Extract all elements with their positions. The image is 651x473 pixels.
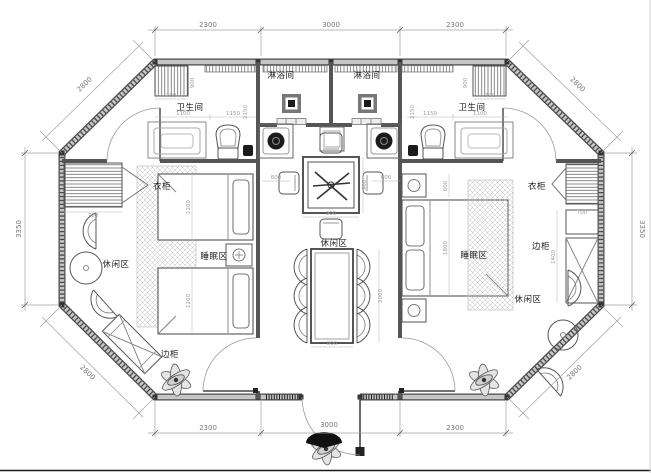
single-bed	[158, 174, 253, 240]
single-bed	[158, 268, 253, 334]
room-label-wardrobe-right: 衣柜	[528, 181, 546, 192]
dim-diag-tr: 2800	[568, 75, 586, 93]
dim-minor: 600	[381, 175, 392, 181]
room-label-lounge-right: 休闲区	[514, 294, 541, 305]
rug	[468, 180, 513, 310]
nightstand	[226, 244, 252, 266]
floor-drain-icon	[243, 145, 253, 156]
pillow	[233, 274, 249, 328]
room-label-cabinet-left: 边柜	[161, 349, 179, 360]
room-label-wardrobe-left: 衣柜	[153, 181, 171, 192]
dim-minor: 1150	[423, 111, 437, 117]
shower-drain-icon	[282, 94, 301, 113]
dim-minor: 1200	[186, 294, 192, 308]
room-label-lounge-center: 休闲区	[320, 238, 347, 249]
dim-minor: 700	[485, 93, 496, 99]
dim-minor: 800	[327, 341, 338, 347]
dim-minor: 2000	[378, 289, 384, 303]
dim-minor: 900	[326, 211, 337, 217]
room-label-cabinet-right: 边柜	[532, 241, 550, 252]
dim-top-right: 2300	[446, 21, 464, 29]
dim-minor: 700	[577, 210, 588, 216]
dim-minor: 1200	[186, 200, 192, 214]
dim-minor: 600	[443, 180, 449, 191]
radiator-icon	[155, 66, 188, 96]
nightstand	[402, 299, 426, 322]
dim-diag-br: 2800	[565, 363, 583, 381]
floor-plan-drawing: 淋浴间 淋浴间 卫生间 卫生间 衣柜 衣柜 休闲区 休闲区 休闲区 睡眠区 睡眠…	[0, 0, 651, 473]
room-label-lounge-left: 休闲区	[102, 259, 129, 270]
floor-drain-icon	[408, 145, 418, 156]
dim-bottom-center: 3000	[320, 421, 338, 429]
pillow	[233, 180, 249, 234]
pillow	[406, 250, 424, 290]
dim-left: 3350	[15, 220, 23, 238]
dim-minor: 2150	[410, 105, 416, 119]
dim-minor: 1150	[226, 111, 240, 117]
dim-minor: 2150	[243, 105, 249, 119]
nightstand	[402, 174, 426, 197]
radiator-icon	[473, 66, 506, 96]
shower-drain-icon	[358, 94, 377, 113]
dim-minor: 900	[463, 77, 469, 88]
pillow	[406, 206, 424, 246]
dim-bottom-right: 2300	[446, 424, 464, 432]
dim-minor: 1400	[551, 250, 557, 264]
dim-minor: 1100	[473, 111, 487, 117]
dim-minor: 900	[190, 77, 196, 88]
floor-plan-canvas: 淋浴间 淋浴间 卫生间 卫生间 衣柜 衣柜 休闲区 休闲区 休闲区 睡眠区 睡眠…	[0, 0, 651, 473]
dim-minor: 900	[362, 179, 368, 190]
dim-bottom-left: 2300	[199, 424, 217, 432]
room-label-sleep-right: 睡眠区	[460, 251, 487, 261]
dim-minor: 1100	[176, 111, 190, 117]
dim-top-left: 2300	[199, 21, 217, 29]
side-cabinet	[566, 210, 598, 303]
dim-minor: 700	[166, 93, 177, 99]
room-label-shower-right: 淋浴间	[353, 70, 380, 81]
dim-right: 3350	[638, 220, 646, 238]
dim-minor: 1800	[443, 241, 449, 255]
dim-minor: 700	[88, 213, 99, 219]
washbasin-icon	[376, 133, 393, 150]
washbasin-icon	[268, 133, 285, 150]
room-label-sleep-left: 睡眠区	[200, 252, 227, 262]
dim-diag-tl: 2800	[75, 75, 93, 93]
dim-top-center: 3000	[322, 21, 340, 29]
dim-minor: 600	[271, 175, 282, 181]
dim-diag-bl: 2800	[78, 363, 96, 381]
room-label-shower-left: 淋浴间	[267, 70, 294, 81]
